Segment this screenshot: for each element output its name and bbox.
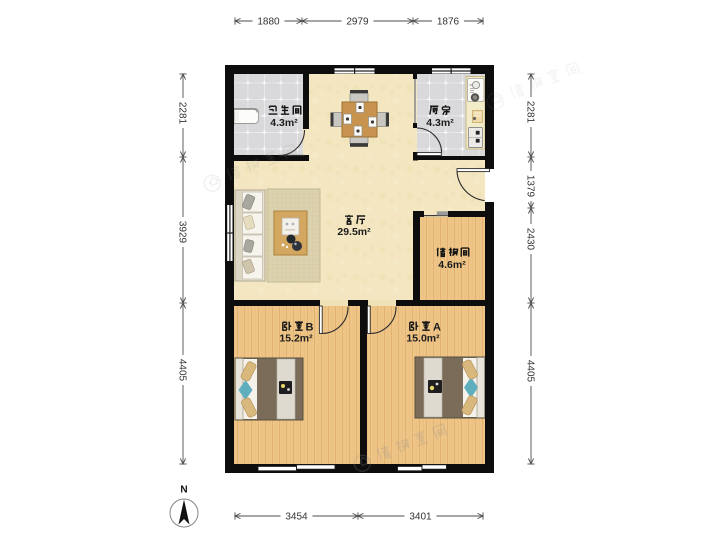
svg-text:3454: 3454 bbox=[285, 512, 308, 523]
svg-text:2281: 2281 bbox=[525, 101, 536, 124]
svg-text:3929: 3929 bbox=[177, 221, 188, 244]
svg-text:3401: 3401 bbox=[409, 512, 432, 523]
svg-text:4.6m²: 4.6m² bbox=[438, 259, 466, 271]
svg-text:2281: 2281 bbox=[177, 102, 188, 125]
svg-text:N: N bbox=[180, 485, 187, 496]
svg-text:4405: 4405 bbox=[177, 359, 188, 382]
svg-text:2430: 2430 bbox=[525, 228, 536, 251]
svg-text:4.3m²: 4.3m² bbox=[426, 117, 454, 129]
svg-text:15.0m²: 15.0m² bbox=[406, 333, 440, 345]
svg-text:1876: 1876 bbox=[437, 17, 460, 28]
svg-text:1880: 1880 bbox=[257, 17, 280, 28]
svg-text:15.2m²: 15.2m² bbox=[279, 333, 313, 345]
svg-text:29.5m²: 29.5m² bbox=[337, 226, 371, 238]
svg-text:1379: 1379 bbox=[525, 175, 536, 198]
svg-text:4405: 4405 bbox=[525, 360, 536, 383]
svg-text:2979: 2979 bbox=[346, 17, 369, 28]
svg-text:4.3m²: 4.3m² bbox=[270, 117, 298, 129]
